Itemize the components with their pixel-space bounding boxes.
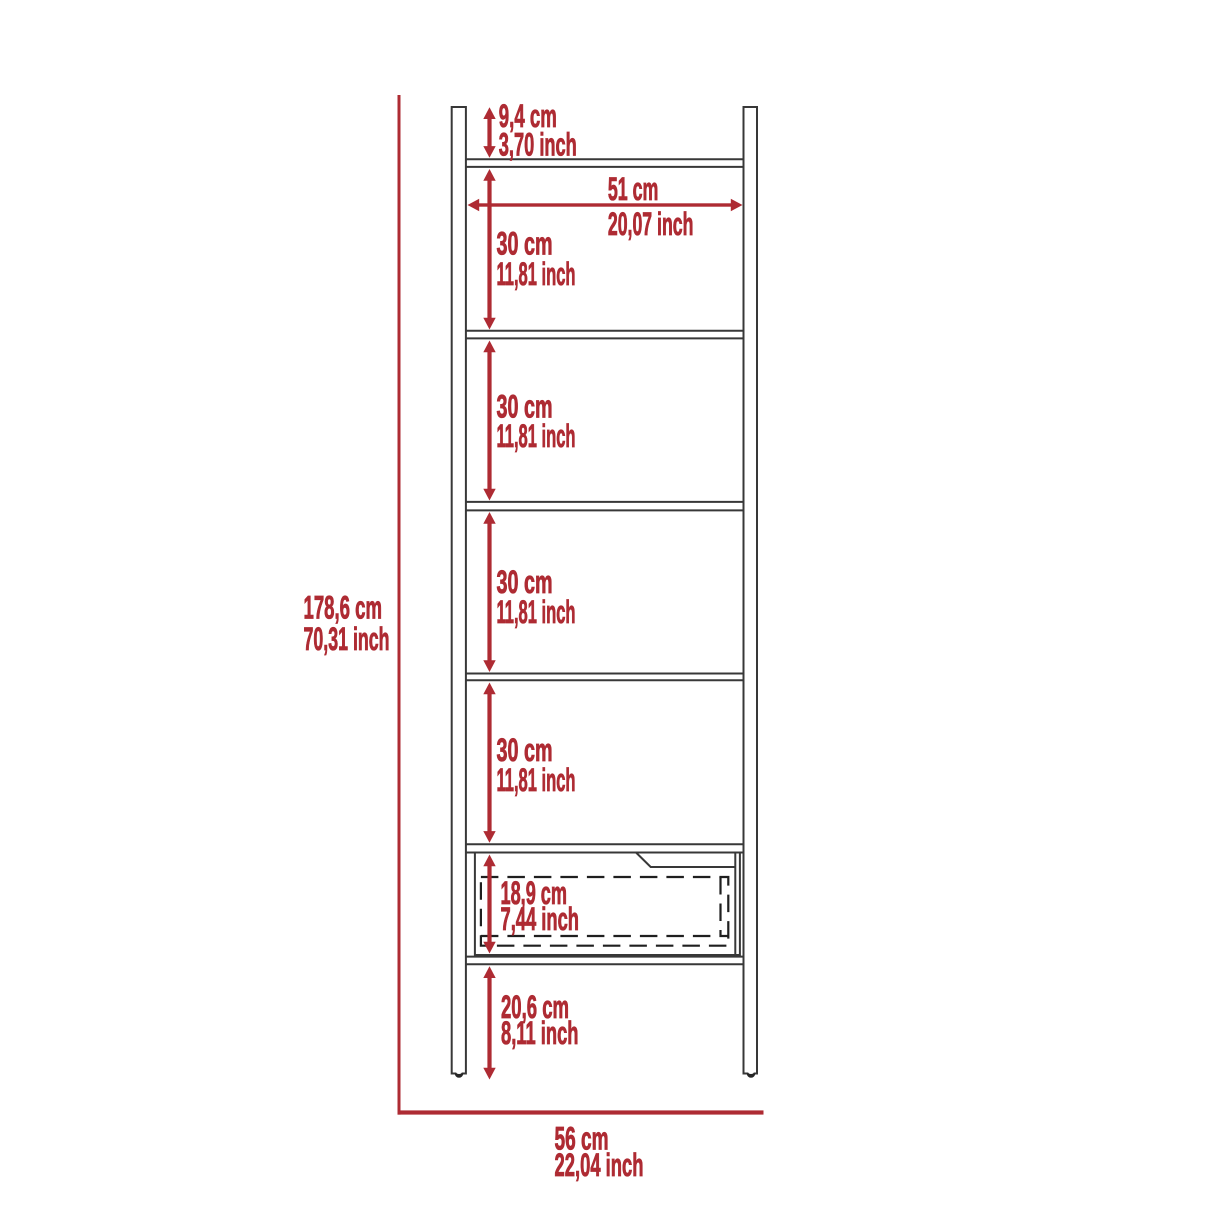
svg-text:11,81 inch: 11,81 inch bbox=[497, 594, 576, 630]
svg-text:22,04 inch: 22,04 inch bbox=[555, 1147, 644, 1183]
svg-text:51 cm: 51 cm bbox=[608, 171, 659, 207]
svg-text:20,07 inch: 20,07 inch bbox=[608, 206, 694, 242]
svg-text:70,31 inch: 70,31 inch bbox=[304, 621, 390, 657]
svg-text:7,44 inch: 7,44 inch bbox=[501, 901, 580, 937]
svg-text:11,81 inch: 11,81 inch bbox=[497, 762, 576, 798]
svg-text:8,11 inch: 8,11 inch bbox=[501, 1015, 579, 1051]
svg-text:11,81 inch: 11,81 inch bbox=[497, 256, 576, 292]
svg-text:11,81 inch: 11,81 inch bbox=[497, 418, 576, 454]
svg-text:3,70 inch: 3,70 inch bbox=[499, 127, 577, 163]
